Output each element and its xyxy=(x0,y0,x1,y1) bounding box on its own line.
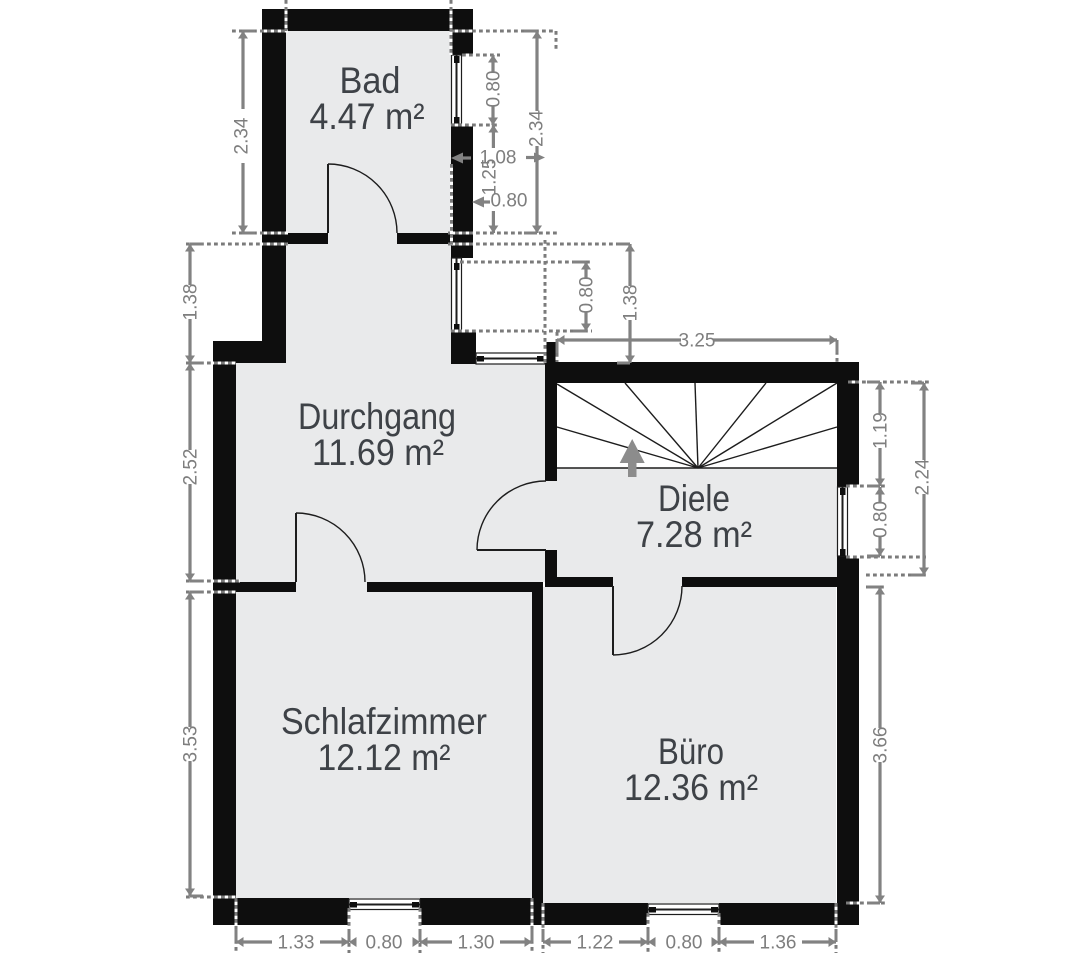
svg-text:3.25: 3.25 xyxy=(679,331,716,352)
svg-text:Schlafzimmer: Schlafzimmer xyxy=(281,701,487,742)
svg-text:11.69 m²: 11.69 m² xyxy=(312,432,444,473)
svg-text:12.12 m²: 12.12 m² xyxy=(318,737,451,778)
svg-text:12.36 m²: 12.36 m² xyxy=(624,767,758,808)
svg-text:0.80: 0.80 xyxy=(871,501,892,538)
svg-text:2.34: 2.34 xyxy=(527,110,548,147)
svg-text:0.80: 0.80 xyxy=(577,277,598,314)
svg-text:2.34: 2.34 xyxy=(232,117,253,154)
svg-text:Diele: Diele xyxy=(658,478,730,519)
svg-text:1.19: 1.19 xyxy=(871,412,892,449)
svg-text:0.80: 0.80 xyxy=(484,71,505,108)
svg-text:7.28 m²: 7.28 m² xyxy=(636,514,752,555)
svg-text:0.80: 0.80 xyxy=(491,191,528,212)
svg-text:1.38: 1.38 xyxy=(181,284,202,321)
svg-text:Büro: Büro xyxy=(658,731,724,772)
svg-text:0.80: 0.80 xyxy=(666,933,703,954)
svg-text:0.80: 0.80 xyxy=(366,933,403,954)
svg-text:1.33: 1.33 xyxy=(278,933,315,954)
svg-text:2.24: 2.24 xyxy=(913,458,934,495)
svg-text:3.66: 3.66 xyxy=(871,727,892,764)
svg-text:1.38: 1.38 xyxy=(621,285,642,322)
svg-text:1.22: 1.22 xyxy=(577,933,614,954)
svg-text:3.53: 3.53 xyxy=(181,726,202,763)
svg-text:Bad: Bad xyxy=(340,60,401,101)
svg-text:1.30: 1.30 xyxy=(458,933,495,954)
svg-text:Durchgang: Durchgang xyxy=(298,396,456,437)
svg-text:4.47 m²: 4.47 m² xyxy=(310,96,425,137)
svg-text:2.52: 2.52 xyxy=(181,449,202,486)
svg-text:1.36: 1.36 xyxy=(760,933,797,954)
